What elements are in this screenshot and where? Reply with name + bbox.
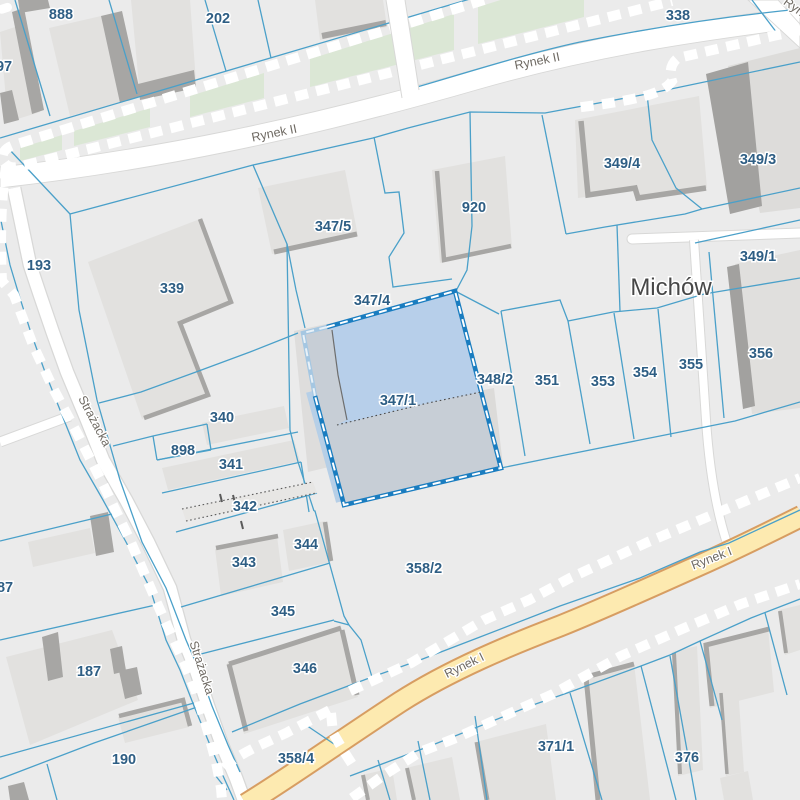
svg-text:343: 343 xyxy=(232,555,256,571)
svg-text:371/1: 371/1 xyxy=(538,739,574,755)
svg-text:351: 351 xyxy=(535,373,559,389)
svg-text:349/4: 349/4 xyxy=(604,156,640,172)
svg-text:898: 898 xyxy=(171,443,195,459)
svg-text:Michów: Michów xyxy=(630,274,712,301)
svg-text:347/4: 347/4 xyxy=(354,293,390,309)
svg-text:348/2: 348/2 xyxy=(477,372,513,388)
svg-text:376: 376 xyxy=(675,750,699,766)
svg-text:347/1: 347/1 xyxy=(380,393,416,409)
svg-text:87: 87 xyxy=(0,580,13,596)
svg-text:349/3: 349/3 xyxy=(740,152,776,168)
svg-text:358/2: 358/2 xyxy=(406,561,442,577)
svg-text:342: 342 xyxy=(233,499,257,515)
svg-text:354: 354 xyxy=(633,365,657,381)
svg-text:344: 344 xyxy=(294,537,318,553)
svg-text:355: 355 xyxy=(679,357,703,373)
svg-text:97: 97 xyxy=(0,59,12,75)
svg-text:353: 353 xyxy=(591,374,615,390)
svg-text:349/1: 349/1 xyxy=(740,249,776,265)
svg-text:346: 346 xyxy=(293,661,317,677)
svg-text:340: 340 xyxy=(210,410,234,426)
svg-text:202: 202 xyxy=(206,11,230,27)
svg-text:187: 187 xyxy=(77,664,101,680)
svg-text:356: 356 xyxy=(749,346,773,362)
svg-text:339: 339 xyxy=(160,281,184,297)
svg-text:920: 920 xyxy=(462,200,486,216)
svg-text:888: 888 xyxy=(49,7,73,23)
svg-text:338: 338 xyxy=(666,8,690,24)
svg-text:347/5: 347/5 xyxy=(315,219,351,235)
svg-text:345: 345 xyxy=(271,604,295,620)
svg-text:341: 341 xyxy=(219,457,243,473)
svg-text:193: 193 xyxy=(27,258,51,274)
svg-text:190: 190 xyxy=(112,752,136,768)
svg-text:358/4: 358/4 xyxy=(278,751,314,767)
